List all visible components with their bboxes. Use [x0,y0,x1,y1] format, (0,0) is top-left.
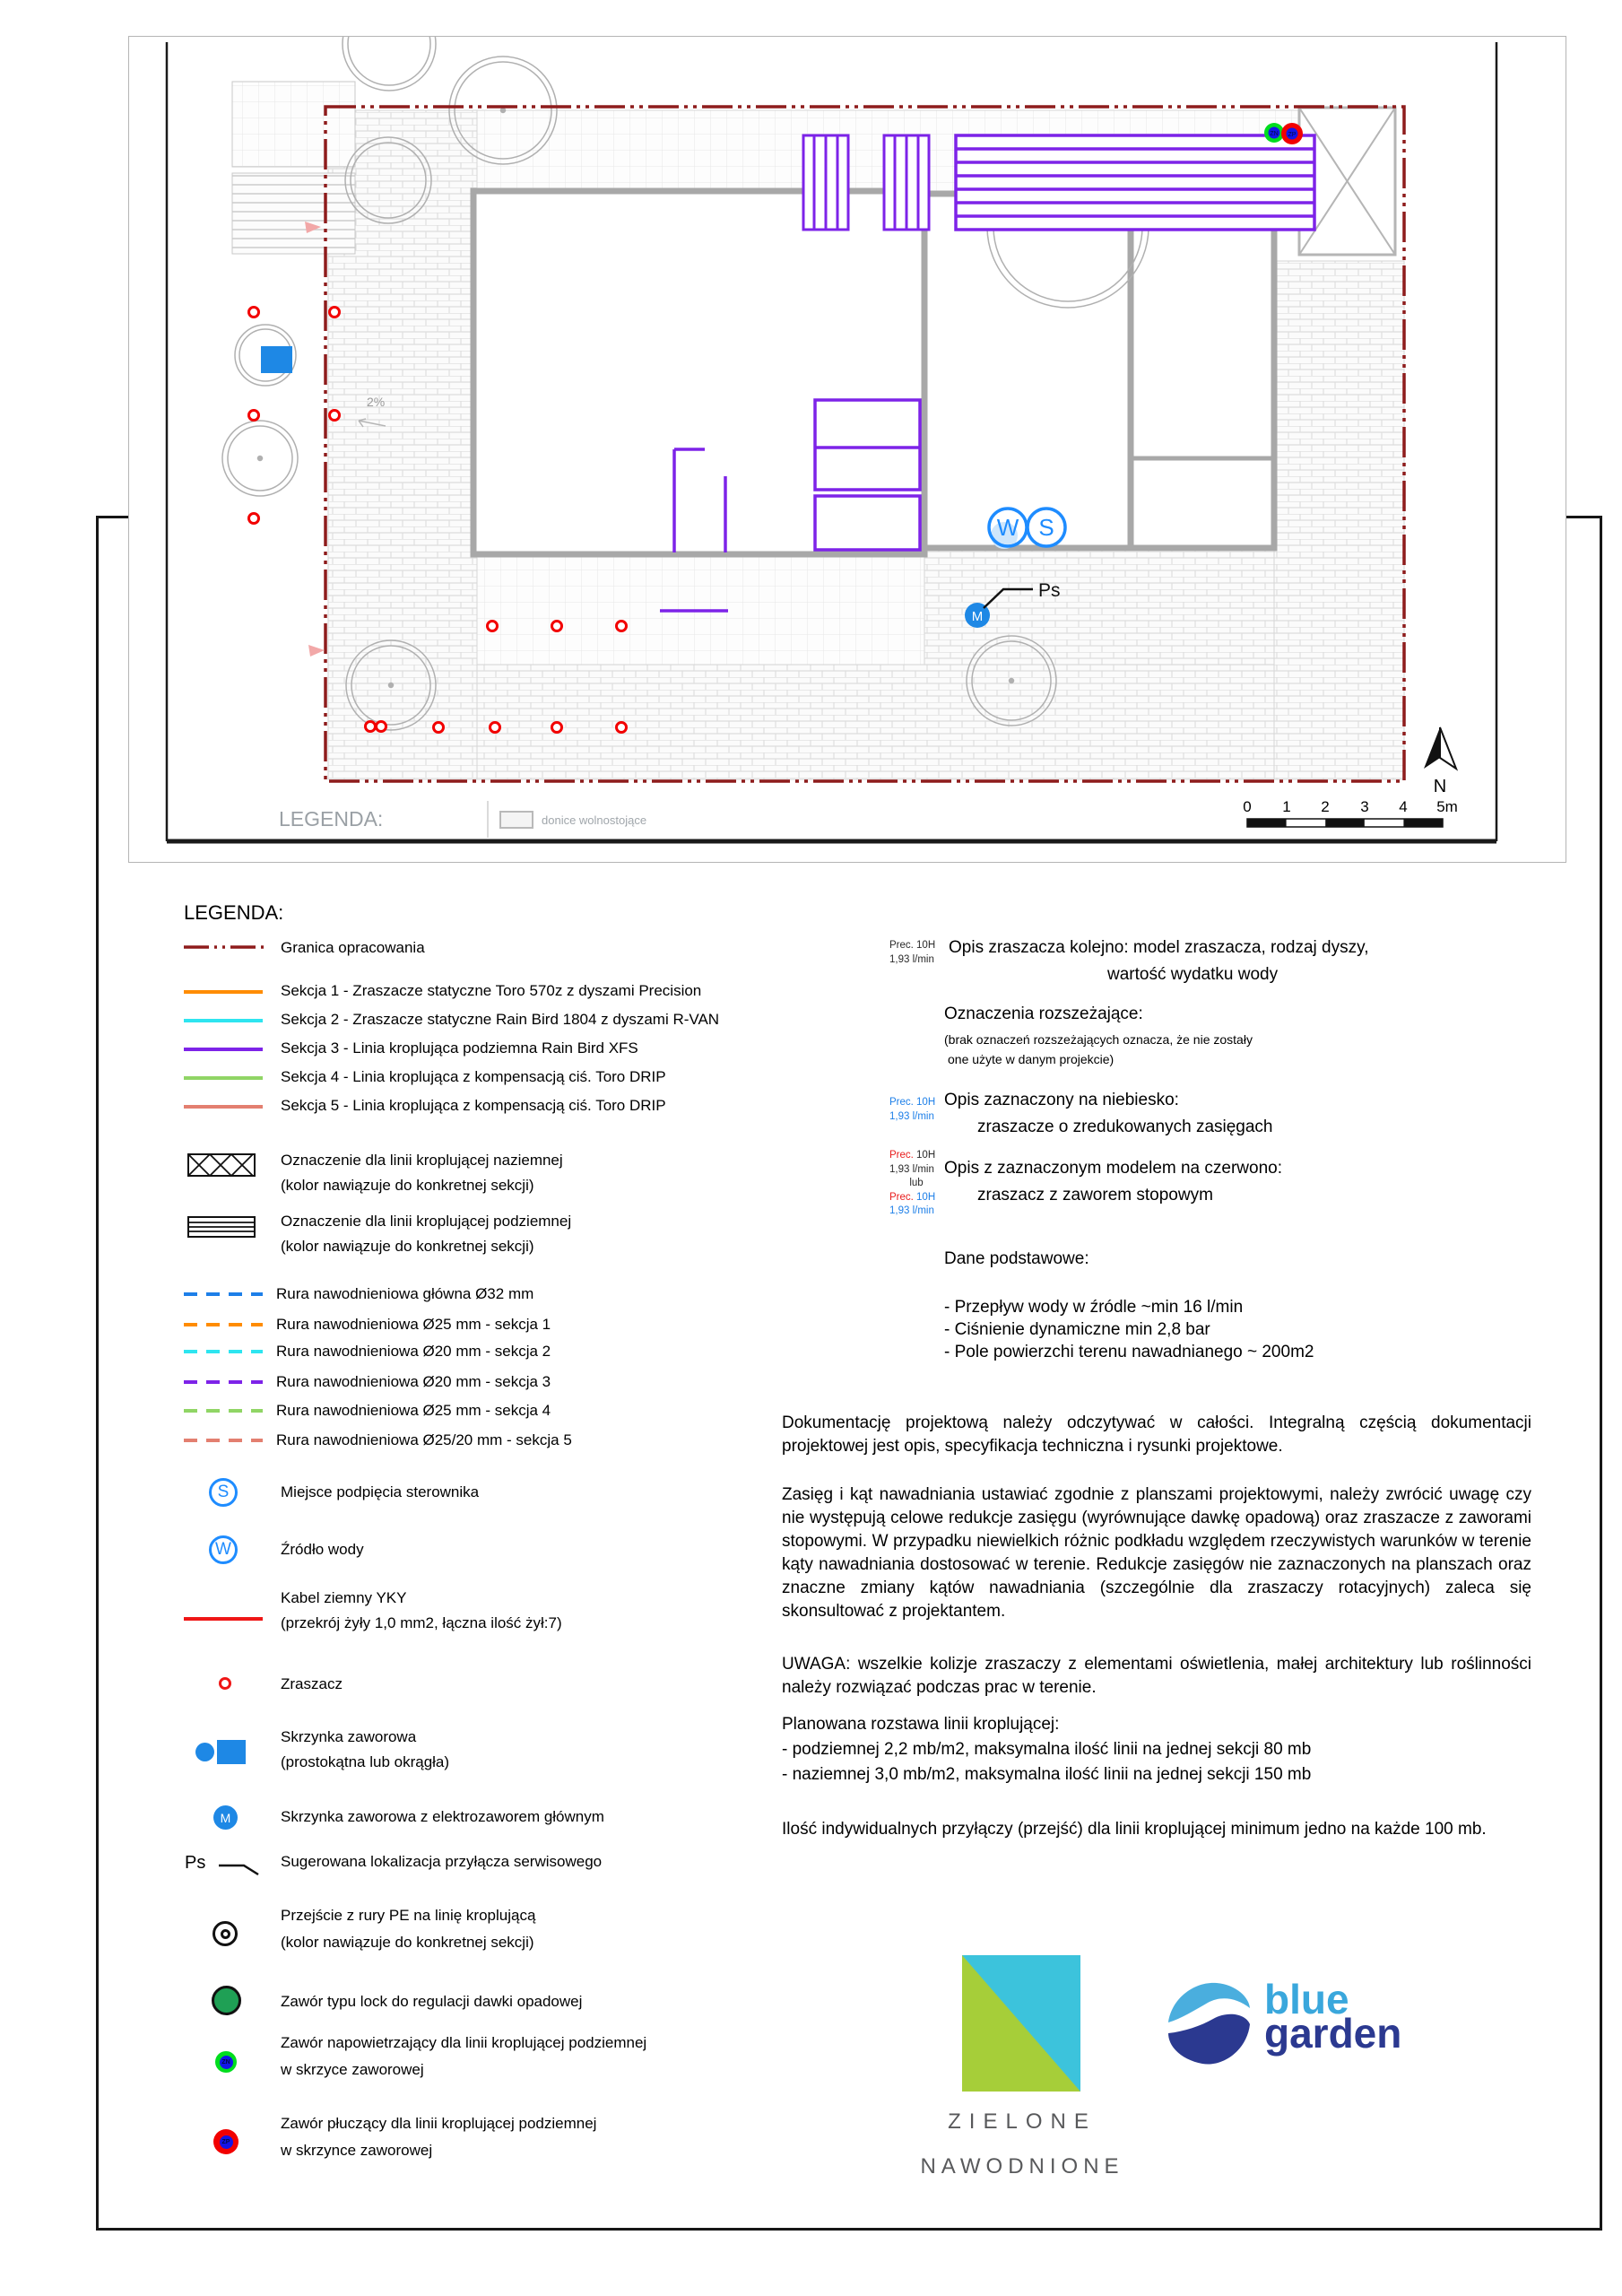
donice-label: donice wolnostojące [542,813,646,827]
irrigation-plan-page: ZN ZP 2% [0,0,1622,2296]
plan-sheet: ZN ZP 2% [128,36,1566,863]
svg-text:Ps: Ps [1038,580,1061,601]
svg-text:0: 0 [1243,798,1251,815]
scale-bar: 0 1 2 3 4 5m [1243,798,1458,827]
svg-text:ZN: ZN [1270,131,1278,137]
svg-text:M: M [972,609,984,624]
donice-symbol [500,812,533,828]
boundary-arrow-2 [308,645,325,657]
svg-text:ZP: ZP [1288,132,1297,138]
building-walls [473,191,1274,554]
valve-box [261,346,292,373]
zn-valve-marker: ZN [1264,123,1284,143]
north-arrow: N [1424,727,1456,796]
svg-text:4: 4 [1399,798,1407,815]
svg-text:5m: 5m [1436,798,1458,815]
svg-text:3: 3 [1360,798,1368,815]
svg-text:1: 1 [1282,798,1290,815]
site-plan-svg: ZN ZP 2% [129,37,1566,862]
sheet-bottom-strip: LEGENDA: donice wolnostojące [279,801,646,838]
svg-text:S: S [1038,514,1054,541]
plan-strip-title: LEGENDA: [279,807,383,831]
svg-text:N: N [1434,777,1446,796]
svg-text:2%: 2% [367,395,385,409]
zp-valve-marker: ZP [1281,123,1303,144]
svg-text:W: W [997,514,1019,541]
svg-text:2: 2 [1321,798,1329,815]
